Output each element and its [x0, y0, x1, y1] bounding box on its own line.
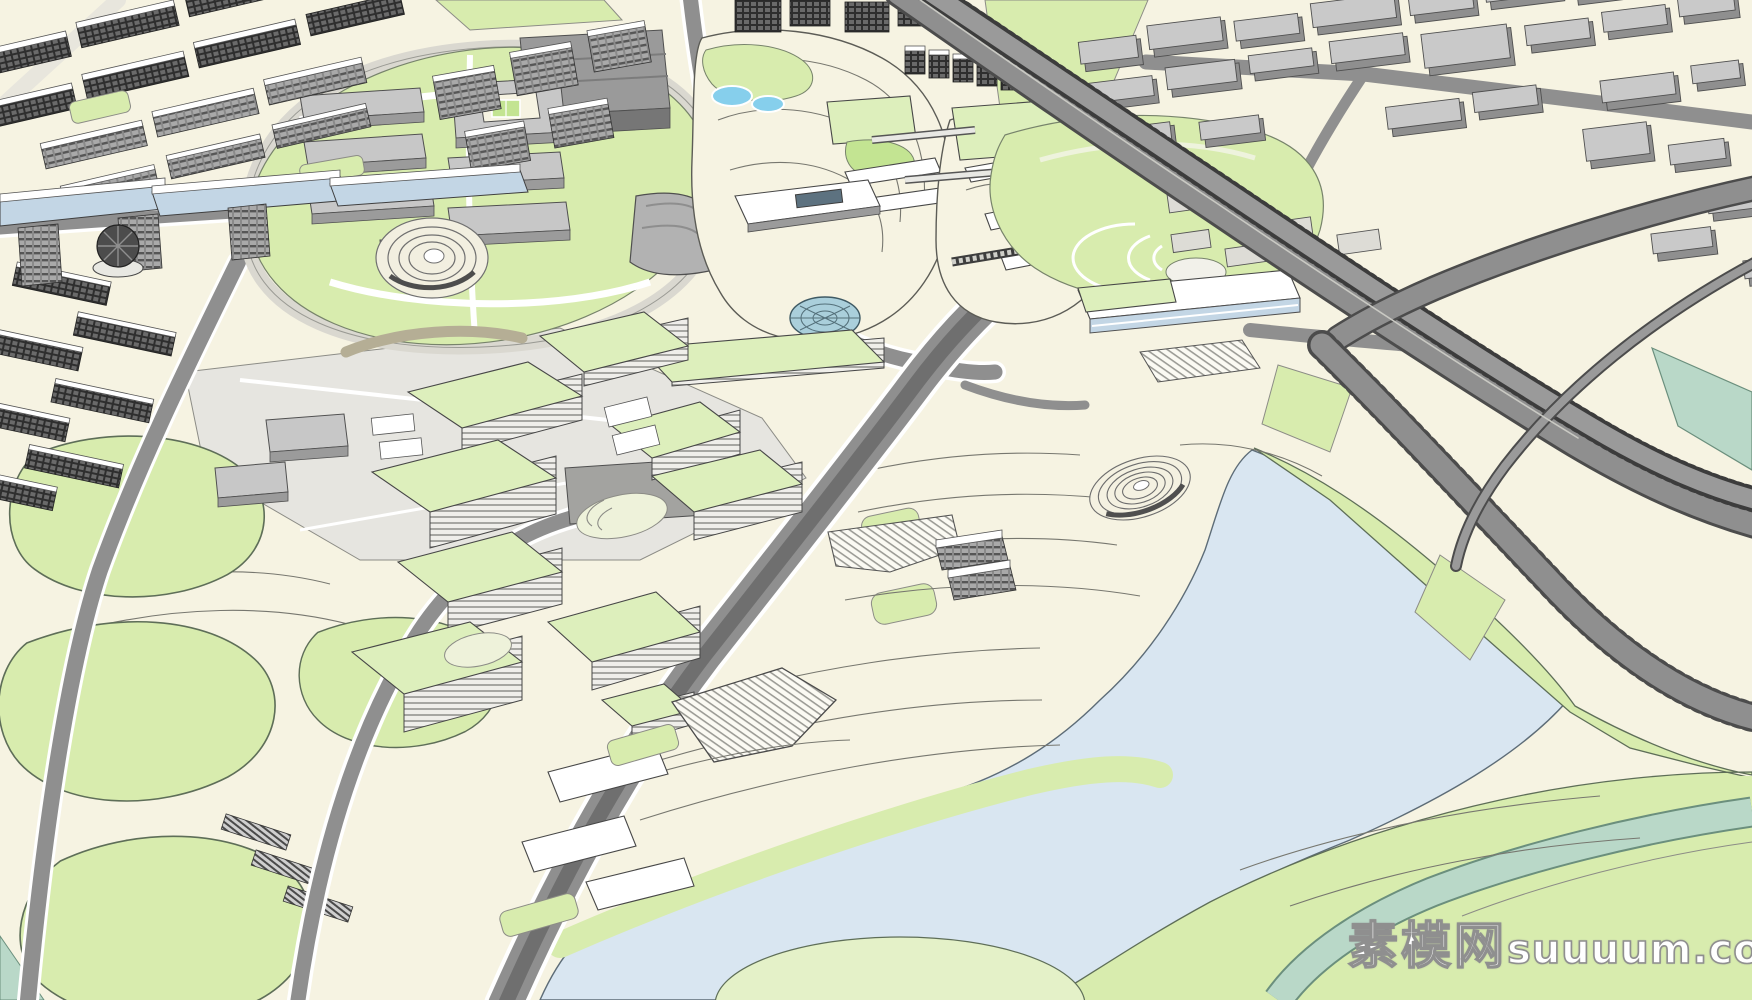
masterplan-render: 素模网suuuum.com	[0, 0, 1752, 1000]
roof-pool	[712, 86, 752, 106]
watermark-cn-text: 素模网	[1348, 906, 1507, 978]
spiral-landform	[376, 218, 488, 298]
watermark: 素模网suuuum.com	[1348, 906, 1752, 978]
render-canvas	[0, 0, 1752, 1000]
roof-pool	[752, 96, 784, 112]
watermark-en-text: suuuum.com	[1507, 927, 1752, 973]
